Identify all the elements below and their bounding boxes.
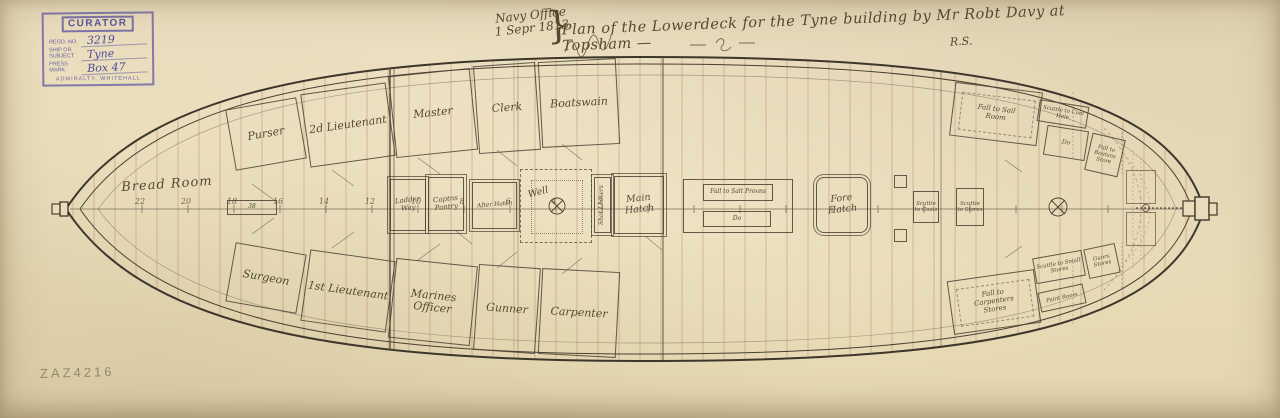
captains-pantry: Captns Pantry [428, 177, 464, 231]
compartment-label: Gunrs Stores [1086, 252, 1118, 270]
main-hatch: Main Hatch [614, 176, 664, 234]
bow-compartment-upper [1126, 170, 1156, 204]
mizzen-mast-partners: 38 [227, 200, 277, 215]
stern-details [52, 202, 68, 216]
compartment-label: Scuttle to Small Stores [1034, 257, 1083, 277]
compartment-label: Main Hatch [614, 192, 664, 218]
cabin-gunner: Gunner [473, 264, 541, 354]
stamp-field-value: Box 47 [81, 60, 147, 75]
curator-stamp: CURATOR Regd. No. 3219 Ship or Subject T… [42, 11, 155, 86]
shot-lockers: Shot Lockers [594, 177, 611, 233]
stamp-row-regd-no: Regd. No. 3219 [49, 31, 147, 46]
cabin-label: Purser [247, 125, 286, 144]
carpenters-inner-outline [956, 279, 1035, 327]
cabin-surgeon: Surgeon [225, 242, 306, 314]
ditto-scuttle: Do [1043, 125, 1089, 161]
compartment-label: Do [1061, 139, 1070, 147]
stamp-field-label: Ship or Subject [49, 49, 81, 61]
cabin-label: Surgeon [242, 268, 291, 288]
curator-stamp-title: CURATOR [62, 16, 134, 33]
ditto-hatch: Do [703, 211, 771, 227]
cabin-marines-officer: Marines Officer [388, 258, 478, 346]
compartment-label: Do [733, 216, 741, 223]
riding-bitt-upper [894, 175, 907, 188]
cabin-label: 2d Lieutenant [309, 113, 388, 136]
svg-text:22: 22 [134, 197, 145, 206]
cabin-boatswain: Boatswain [538, 58, 620, 148]
cabin-carpenter: Carpenter [538, 268, 620, 358]
cabin-first-lieutenant: 1st Lieutenant [300, 249, 395, 332]
cabin-master: Master [388, 68, 478, 158]
fall-to-sail-room: Fall to Sail Room [949, 82, 1043, 146]
fall-to-salt-provisions: Fall to Salt Provns [703, 184, 773, 201]
stamp-row-press-mark: Press Mark Box 47 [49, 59, 147, 74]
compartment-label: Captns Pantry [428, 194, 463, 213]
compartment-label: After Hatch [476, 201, 512, 211]
station-mark: 38 [248, 204, 256, 211]
compartment-label: Shot Lockers [599, 185, 606, 225]
bow-compartment-lower [1126, 212, 1156, 246]
scuttle-to-coals: Scuttle to Coals [913, 191, 939, 223]
compartment-label: Fore Hatch [816, 192, 868, 218]
compartment-label: Scuttle to Stores [957, 201, 983, 213]
cabin-label: 1st Lieutenant [307, 279, 389, 302]
compartment-label: Fall to Boatsns Store [1087, 142, 1122, 167]
cabin-label: Clerk [491, 101, 522, 115]
riding-bitt-lower [894, 229, 907, 242]
sail-room-inner-outline [958, 92, 1036, 139]
svg-text:20: 20 [180, 197, 191, 206]
title-initials: R.S. [950, 35, 973, 48]
compartment-label: Paint Room [1046, 292, 1079, 305]
stamp-footer: ADMIRALTY, WHITEHALL [49, 75, 147, 82]
ladder-way: Ladder Way [390, 179, 426, 231]
svg-text:12: 12 [365, 197, 375, 206]
cabin-label: Master [413, 105, 454, 121]
cabin-label: Gunner [486, 301, 529, 316]
cabin-clerk: Clerk [473, 62, 541, 154]
compartment-label: Scuttle to Coals [914, 201, 938, 213]
paper-sheet: 22 20 18 16 14 12 10 8 6 4 2 [0, 0, 1280, 418]
cabin-label: Boatswain [550, 95, 608, 110]
fall-to-provisions-outer: Fall to Salt Provns Do [683, 179, 793, 233]
stamp-field-label: Press Mark [49, 63, 81, 75]
cabin-label: Marines Officer [392, 286, 474, 319]
well: Well [520, 169, 592, 243]
cabin-label: Carpenter [550, 305, 608, 320]
archive-reference-pencil: ZAZ4216 [40, 364, 115, 381]
cabin-second-lieutenant: 2d Lieutenant [300, 82, 395, 167]
fore-hatch: Fore Hatch [816, 177, 868, 233]
compartment-label: Fall to Salt Provns [710, 189, 766, 196]
scuttle-to-stores: Scuttle to Stores [956, 188, 984, 226]
svg-text:14: 14 [319, 197, 329, 206]
compartment-label: Ladder Way [390, 195, 425, 214]
stamp-row-ship-subject: Ship or Subject Tyne [49, 45, 147, 60]
cabin-purser: Purser [225, 97, 307, 171]
after-hatch: After Hatch [472, 182, 517, 229]
compartment-label: Scuttle to Coal Hole [1038, 104, 1087, 124]
stamp-field-label: Regd. No. [49, 40, 81, 46]
